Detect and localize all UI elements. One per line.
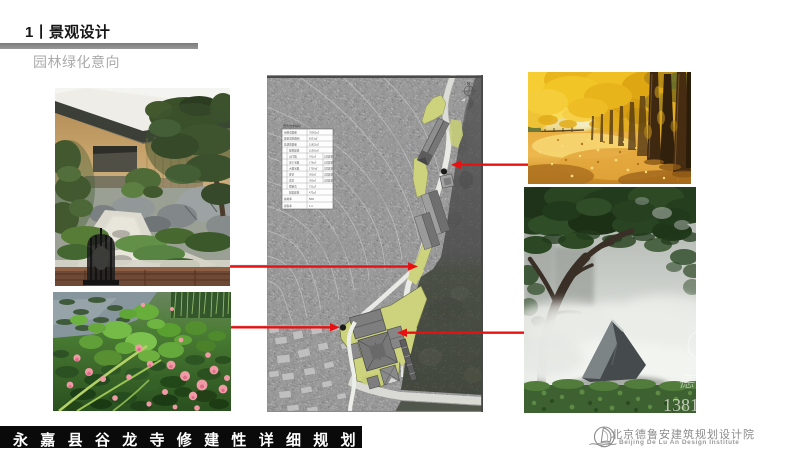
svg-text:· B L A ·: · B L A · [600,446,608,449]
